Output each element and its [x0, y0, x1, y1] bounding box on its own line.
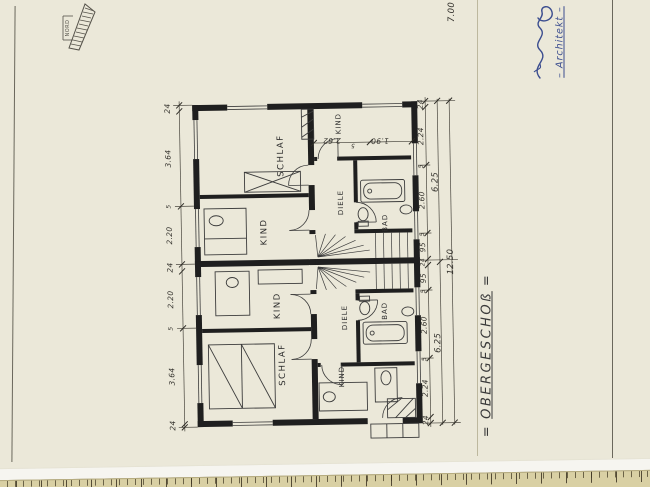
- room-label-diele-top: DIELE: [337, 190, 345, 215]
- room-label-kind-bottom-right: KIND: [338, 366, 346, 387]
- dim-left-3: 2.20: [165, 227, 174, 245]
- room-label-schlaf-bottom: SCHLAF: [277, 343, 288, 386]
- dim-right-8: 5: [420, 289, 427, 293]
- dim-right-6: 24: [419, 258, 426, 266]
- dim-right-625-top: 6.25: [430, 172, 440, 192]
- dim-right-0: 24: [416, 99, 425, 109]
- dim-right-9: 2.60: [419, 316, 428, 334]
- title-text: OBERGESCHOß: [480, 286, 495, 424]
- dim-left-8: 24: [168, 420, 177, 430]
- dim-right-10: 5: [421, 357, 428, 361]
- dim-left-6: 5: [168, 326, 175, 330]
- dim-left-1: 3.64: [163, 150, 172, 168]
- sheet-border-right: [612, 0, 613, 458]
- room-label-bad-top: BAD: [381, 214, 389, 232]
- dim-left-4: 24: [165, 262, 174, 272]
- dim-right-2: 5: [418, 164, 425, 168]
- dim-top-total: 7.00: [447, 2, 457, 22]
- room-label-bad-bottom: BAD: [381, 302, 389, 320]
- dim-right-3: 2.60: [417, 191, 426, 209]
- photo-of-floorplan: NORD – Architekt – 7.00: [0, 0, 650, 487]
- dim-right-12: 24: [421, 415, 430, 425]
- dim-kind-room-1: 5: [351, 142, 355, 149]
- dim-kind-room-0: 2.62: [323, 136, 341, 145]
- room-label-kind-mid-bottom: KIND: [272, 292, 282, 319]
- plan-title: =OBERGESCHOß=: [480, 273, 495, 438]
- dim-right-5: 95: [418, 242, 427, 252]
- dim-left-5: 2.20: [166, 291, 175, 309]
- room-label-diele-bottom: DIELE: [341, 305, 349, 330]
- dim-right-11: 2.24: [420, 379, 429, 397]
- dim-left-2: 5: [165, 204, 172, 208]
- architect-label: – Architekt –: [555, 6, 566, 78]
- title-mark-left: =: [480, 424, 495, 437]
- dim-left-0: 24: [163, 103, 172, 113]
- dim-left-7: 3.64: [167, 368, 176, 386]
- room-label-kind-mid-top: KIND: [259, 218, 269, 245]
- dim-right-4: 5: [419, 232, 426, 236]
- north-label: NORD: [65, 20, 71, 37]
- dim-kind-room-2: 1.90: [371, 136, 389, 145]
- room-label-kind-top-right: KIND: [334, 113, 342, 134]
- dim-right-total: 12.50: [446, 249, 456, 275]
- title-mark-right: =: [480, 273, 495, 286]
- floorplan: SCHLAF KIND KIND DIELE BAD KIND SCHLAF D…: [147, 77, 488, 455]
- room-label-schlaf-top: SCHLAF: [276, 134, 287, 177]
- dim-right-1: 2.24: [416, 127, 425, 145]
- dim-right-625-bottom: 6.25: [433, 333, 443, 353]
- dim-right-7: 95: [419, 273, 428, 283]
